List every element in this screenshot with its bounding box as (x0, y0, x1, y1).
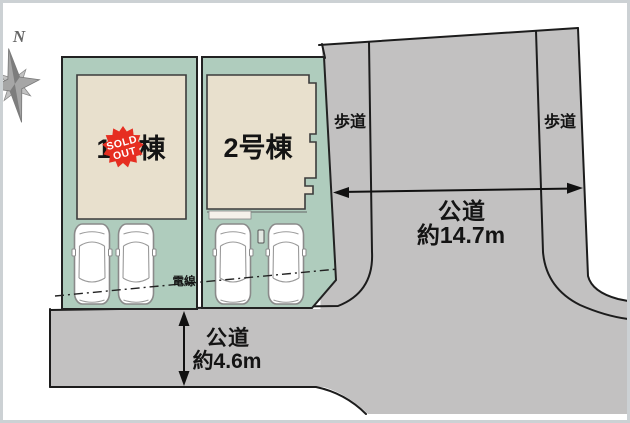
car-icon (266, 224, 306, 304)
powerline-label: 電線 (173, 274, 196, 288)
compass-north-label: N (12, 27, 26, 46)
sidewalk-right-label: 歩道 (544, 112, 576, 131)
lot-2-label: 2号棟 (223, 133, 293, 163)
car-icon (213, 224, 253, 304)
right-road-width: 約14.7m (417, 222, 505, 248)
bottom-road-width: 約4.6m (193, 349, 262, 373)
sidewalk-left-label: 歩道 (334, 112, 366, 131)
car-icon (116, 224, 156, 304)
site-plan-drawing: 電線 1号棟 2号棟 SOLD OUT 歩道 歩道 公道 約14.7m 公道 約… (0, 0, 630, 423)
road-bottom-surface (50, 309, 628, 387)
parking-divider-post (258, 230, 264, 243)
bottom-road-name: 公道 (206, 326, 250, 350)
site-plan-page: 電線 1号棟 2号棟 SOLD OUT 歩道 歩道 公道 約14.7m 公道 約… (0, 0, 630, 423)
right-road-name: 公道 (438, 198, 486, 224)
building-2-porch (209, 211, 251, 219)
car-icon (72, 224, 112, 304)
